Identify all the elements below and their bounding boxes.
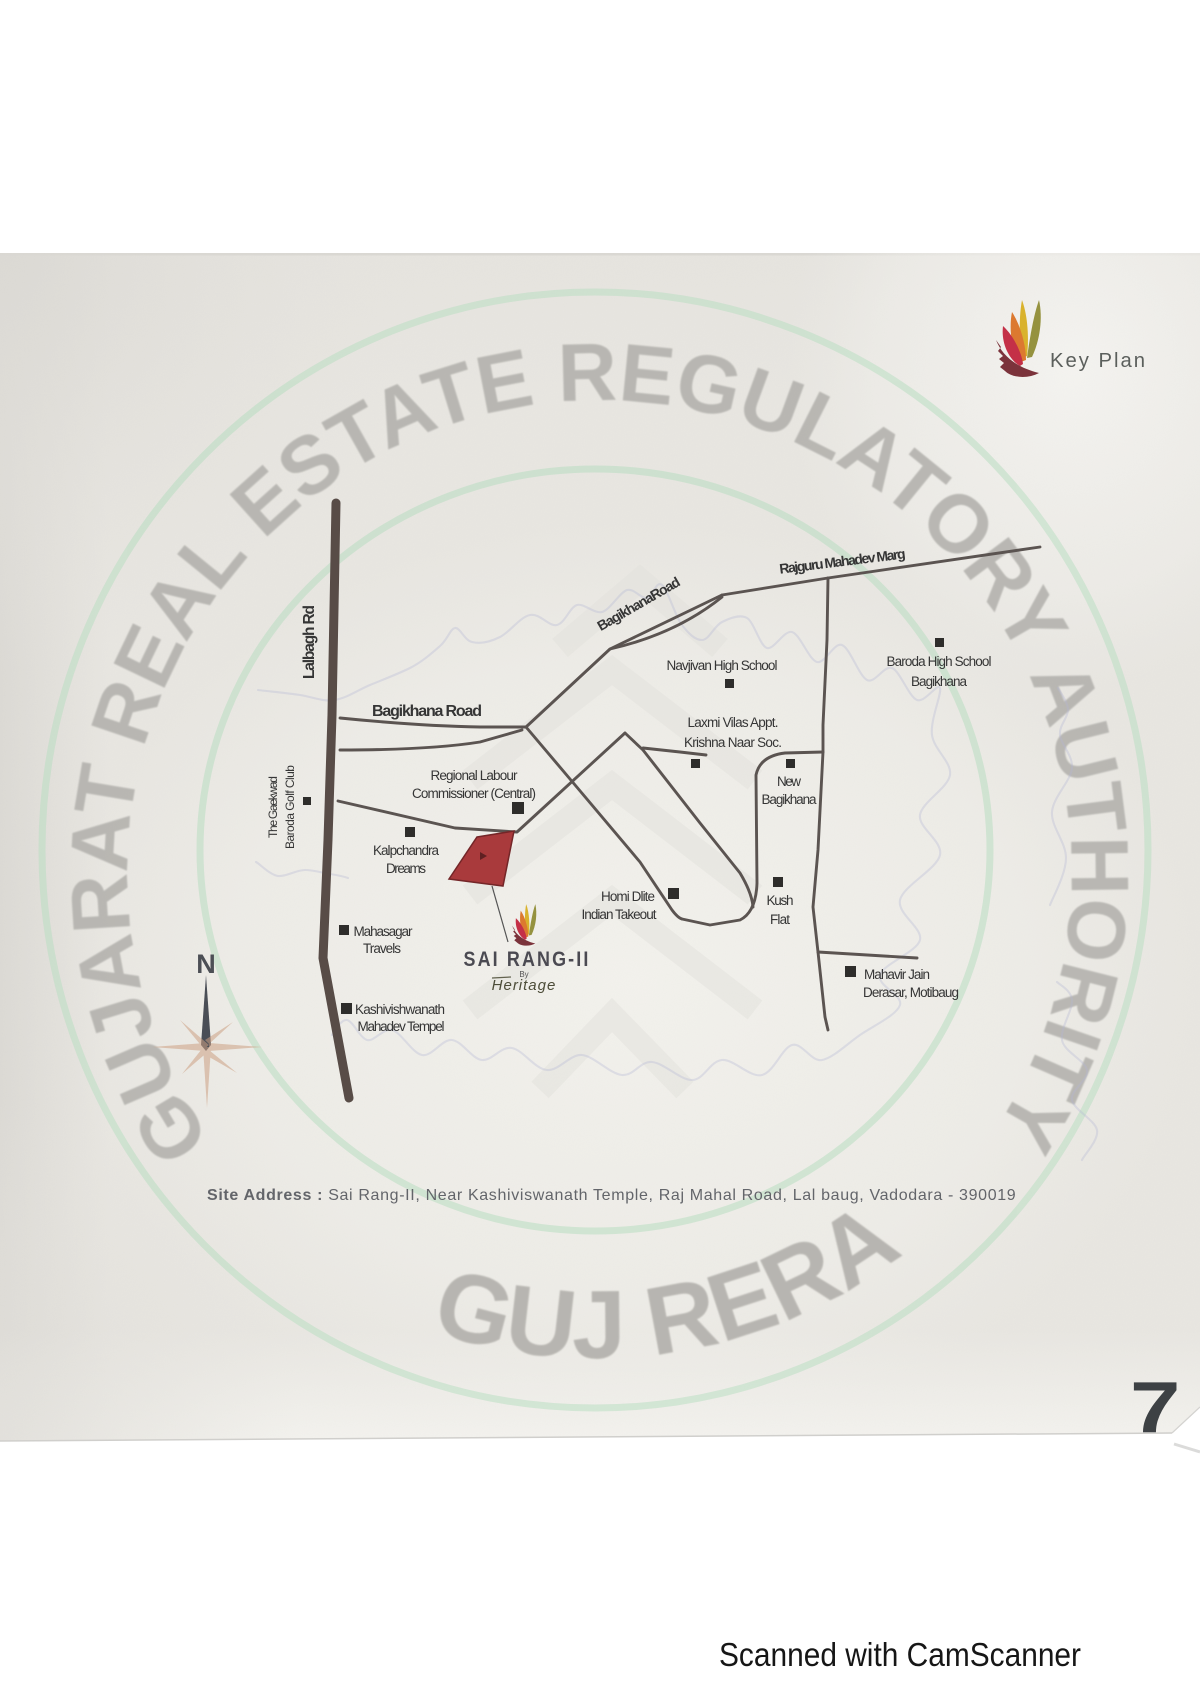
svg-text:Site Address : Sai Rang-II, Ne: Site Address : Sai Rang-II, Near Kashivi… xyxy=(207,1187,1016,1204)
svg-text:SAI RANG-II: SAI RANG-II xyxy=(464,948,591,971)
svg-text:Krishna Naar Soc.: Krishna Naar Soc. xyxy=(684,735,782,750)
svg-text:Kush: Kush xyxy=(767,893,794,908)
svg-text:Bagikhana: Bagikhana xyxy=(911,674,967,689)
svg-text:Mahavir Jain: Mahavir Jain xyxy=(864,967,930,982)
svg-text:The Gaekwad: The Gaekwad xyxy=(266,776,280,838)
svg-text:N: N xyxy=(196,949,216,979)
svg-text:Flat: Flat xyxy=(770,912,790,927)
svg-text:Kashivishwanath: Kashivishwanath xyxy=(355,1002,445,1017)
svg-text:Laxmi Vilas Appt.: Laxmi Vilas Appt. xyxy=(688,715,779,730)
svg-text:Regional Labour: Regional Labour xyxy=(431,768,519,783)
svg-text:Navjivan High School: Navjivan High School xyxy=(667,658,778,673)
svg-text:Lalbagh Rd: Lalbagh Rd xyxy=(301,605,318,679)
svg-text:7: 7 xyxy=(1130,1368,1180,1448)
svg-text:Derasar, Motibaug: Derasar, Motibaug xyxy=(863,985,959,1000)
svg-text:Travels: Travels xyxy=(363,941,401,956)
svg-text:Baroda High School: Baroda High School xyxy=(887,654,992,669)
svg-text:Baroda Golf Club: Baroda Golf Club xyxy=(283,765,297,849)
svg-text:Dreams: Dreams xyxy=(386,861,426,876)
svg-text:Scanned with CamScanner: Scanned with CamScanner xyxy=(719,1636,1081,1673)
svg-text:Kalpchandra: Kalpchandra xyxy=(373,843,439,858)
svg-text:Homi Dlite: Homi Dlite xyxy=(601,889,655,904)
svg-text:Bagikhana: Bagikhana xyxy=(762,792,817,807)
svg-text:Commissioner (Central): Commissioner (Central) xyxy=(412,786,536,801)
svg-text:Mahadev Tempel: Mahadev Tempel xyxy=(358,1019,445,1034)
svg-text:Key Plan: Key Plan xyxy=(1050,349,1147,372)
svg-text:Bagikhana Road: Bagikhana Road xyxy=(372,703,482,720)
svg-text:New: New xyxy=(777,774,801,789)
svg-text:Heritage: Heritage xyxy=(492,977,557,994)
svg-text:Mahasagar: Mahasagar xyxy=(354,924,414,939)
svg-text:Indian Takeout: Indian Takeout xyxy=(582,907,657,922)
